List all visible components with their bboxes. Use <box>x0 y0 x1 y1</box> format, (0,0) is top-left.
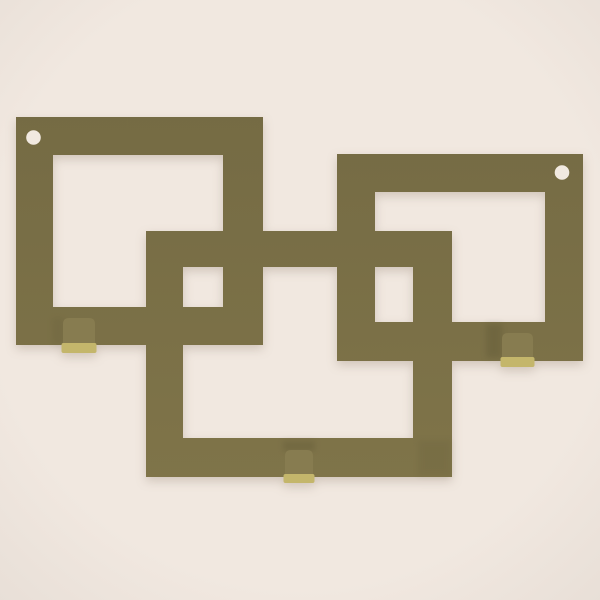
center-hook <box>285 450 313 476</box>
right-screw-hole <box>555 165 570 180</box>
right-hook-lip <box>501 357 535 367</box>
left-hook-lip <box>62 343 97 353</box>
right-hook <box>502 333 533 359</box>
center-hook-lip <box>284 474 315 483</box>
left-screw-hole <box>26 130 41 145</box>
shadow-left-of-right-hook <box>486 324 502 358</box>
product-photo <box>0 0 600 600</box>
shadow-left-of-left-hook <box>52 318 64 345</box>
shadow-center-frame-corner <box>418 440 451 476</box>
wall-background <box>0 0 600 600</box>
shadow-above-center-hook <box>283 441 315 451</box>
product-render <box>0 0 600 600</box>
left-hook <box>63 318 95 345</box>
